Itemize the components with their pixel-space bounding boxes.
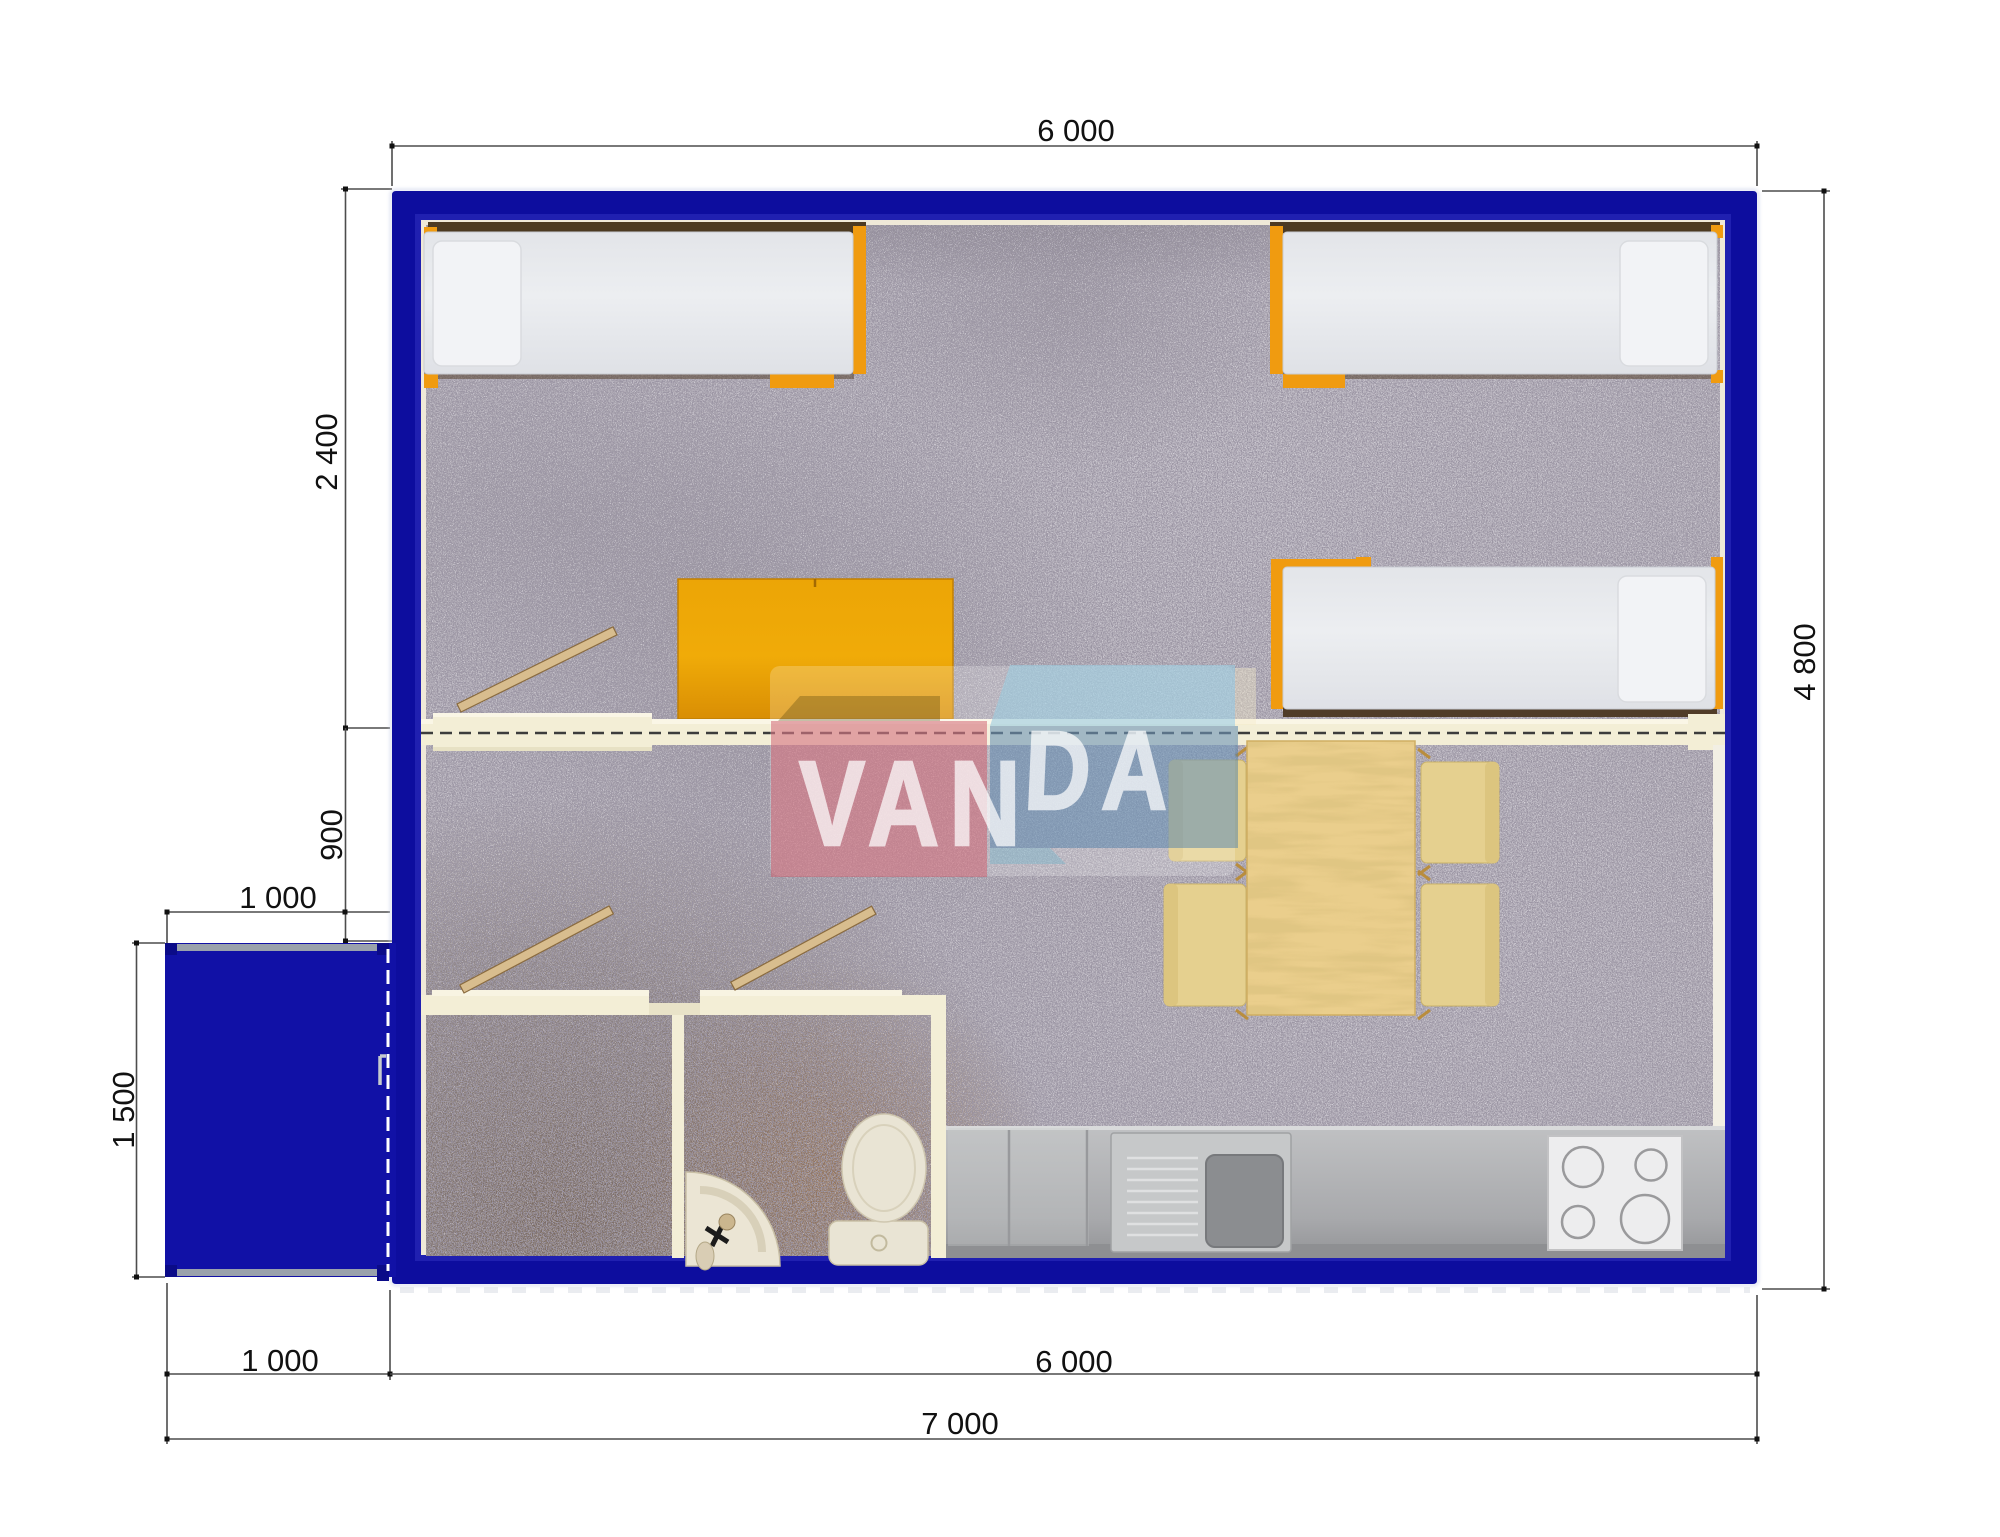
svg-text:900: 900 bbox=[314, 809, 349, 861]
svg-text:2 400: 2 400 bbox=[309, 413, 344, 491]
svg-text:7 000: 7 000 bbox=[921, 1406, 999, 1441]
svg-text:DA: DA bbox=[1022, 707, 1183, 833]
svg-text:6 000: 6 000 bbox=[1035, 1344, 1113, 1379]
svg-text:VAN: VAN bbox=[799, 737, 1031, 872]
svg-text:6 000: 6 000 bbox=[1037, 113, 1115, 148]
svg-text:4 800: 4 800 bbox=[1787, 623, 1822, 701]
svg-text:1 000: 1 000 bbox=[241, 1343, 319, 1378]
svg-text:1 500: 1 500 bbox=[106, 1071, 141, 1149]
svg-text:1 000: 1 000 bbox=[239, 880, 317, 915]
